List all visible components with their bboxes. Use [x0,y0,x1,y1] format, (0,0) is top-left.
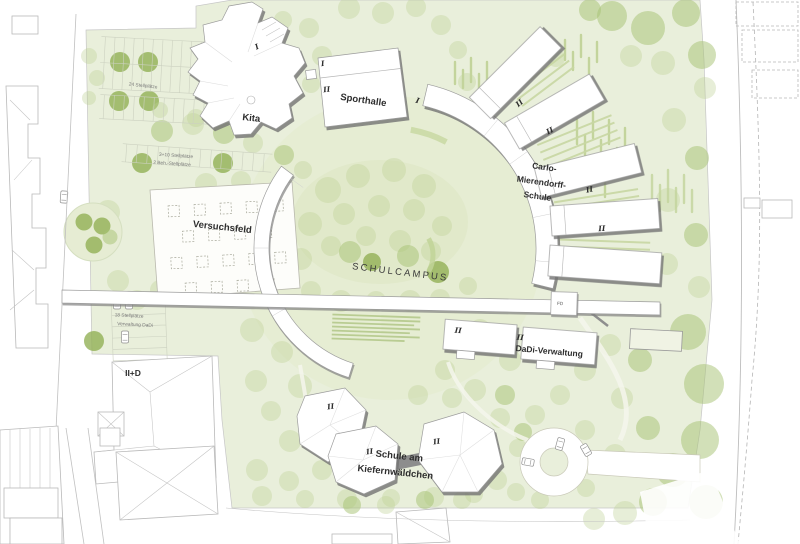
car-icon [122,331,129,343]
label-dadi-a-storeys: II [453,326,462,336]
plaza-circle [64,203,122,261]
site-plan: 24 Stellplätze 3+10 Stellplätze 2 Beh.-S… [0,0,800,544]
label-wing4-storeys: II [597,224,606,234]
label-kita: Kita [242,112,262,125]
label-bestand-storeys: II+D [125,368,141,378]
field-east [630,329,683,352]
site-plan-canvas: 24 Stellplätze 3+10 Stellplätze 2 Beh.-S… [0,0,800,544]
label-fd: FD [557,301,564,306]
label-dadi-b-storeys: II [515,333,524,343]
fd-junction [551,292,578,316]
label-sporthalle-ii: II [322,85,332,95]
